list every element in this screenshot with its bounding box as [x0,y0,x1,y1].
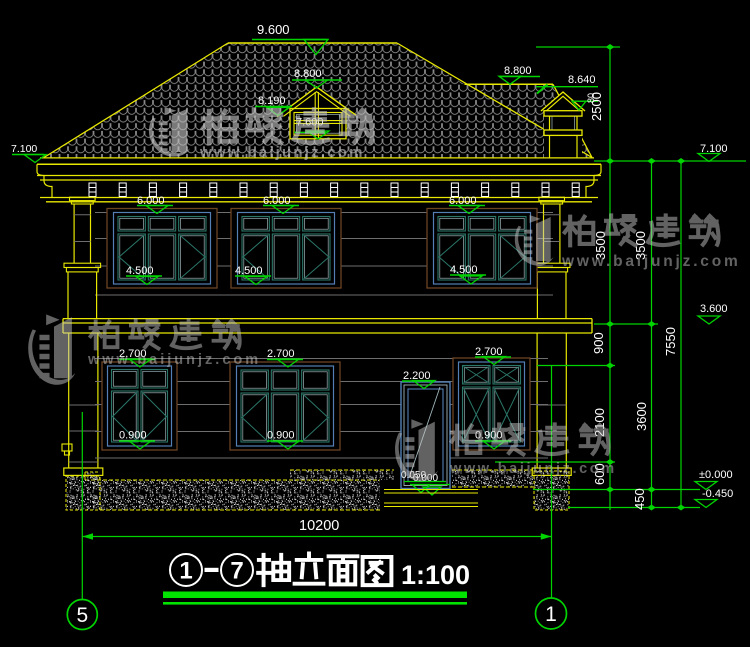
svg-text:-0.450: -0.450 [702,488,733,500]
svg-text:4.500: 4.500 [450,264,478,276]
svg-text:5: 5 [76,604,88,627]
svg-text:1: 1 [179,558,192,585]
svg-text:8.800: 8.800 [504,65,532,77]
svg-text:7.100: 7.100 [11,143,37,155]
svg-text:1: 1 [545,603,557,626]
svg-text:www.baijunjz.com: www.baijunjz.com [449,461,617,477]
svg-text:2.700: 2.700 [267,348,295,360]
svg-text:0.900: 0.900 [267,430,295,442]
svg-text:7550: 7550 [663,327,678,356]
svg-text:900: 900 [591,332,606,354]
svg-text:4.500: 4.500 [126,265,154,277]
svg-text:4.500: 4.500 [235,265,263,277]
svg-text:1:100: 1:100 [401,560,470,590]
svg-text:3600: 3600 [634,402,649,431]
svg-text:8.800: 8.800 [294,68,322,80]
svg-text:www.baijunjz.com: www.baijunjz.com [561,253,741,270]
svg-text:7: 7 [230,558,243,585]
svg-text:9.600: 9.600 [257,22,290,37]
svg-text:8.640: 8.640 [568,74,596,86]
svg-text:www.baijunjz.com: www.baijunjz.com [199,144,365,161]
svg-text:8.190: 8.190 [258,95,286,107]
svg-text:2500: 2500 [589,92,604,121]
svg-text:www.baijunjz.com: www.baijunjz.com [87,352,261,368]
svg-text:3.600: 3.600 [700,303,728,315]
svg-text:±0.000: ±0.000 [699,469,733,481]
svg-text:10200: 10200 [299,518,339,534]
svg-text:0.900: 0.900 [119,430,147,442]
svg-text:450: 450 [632,488,647,510]
